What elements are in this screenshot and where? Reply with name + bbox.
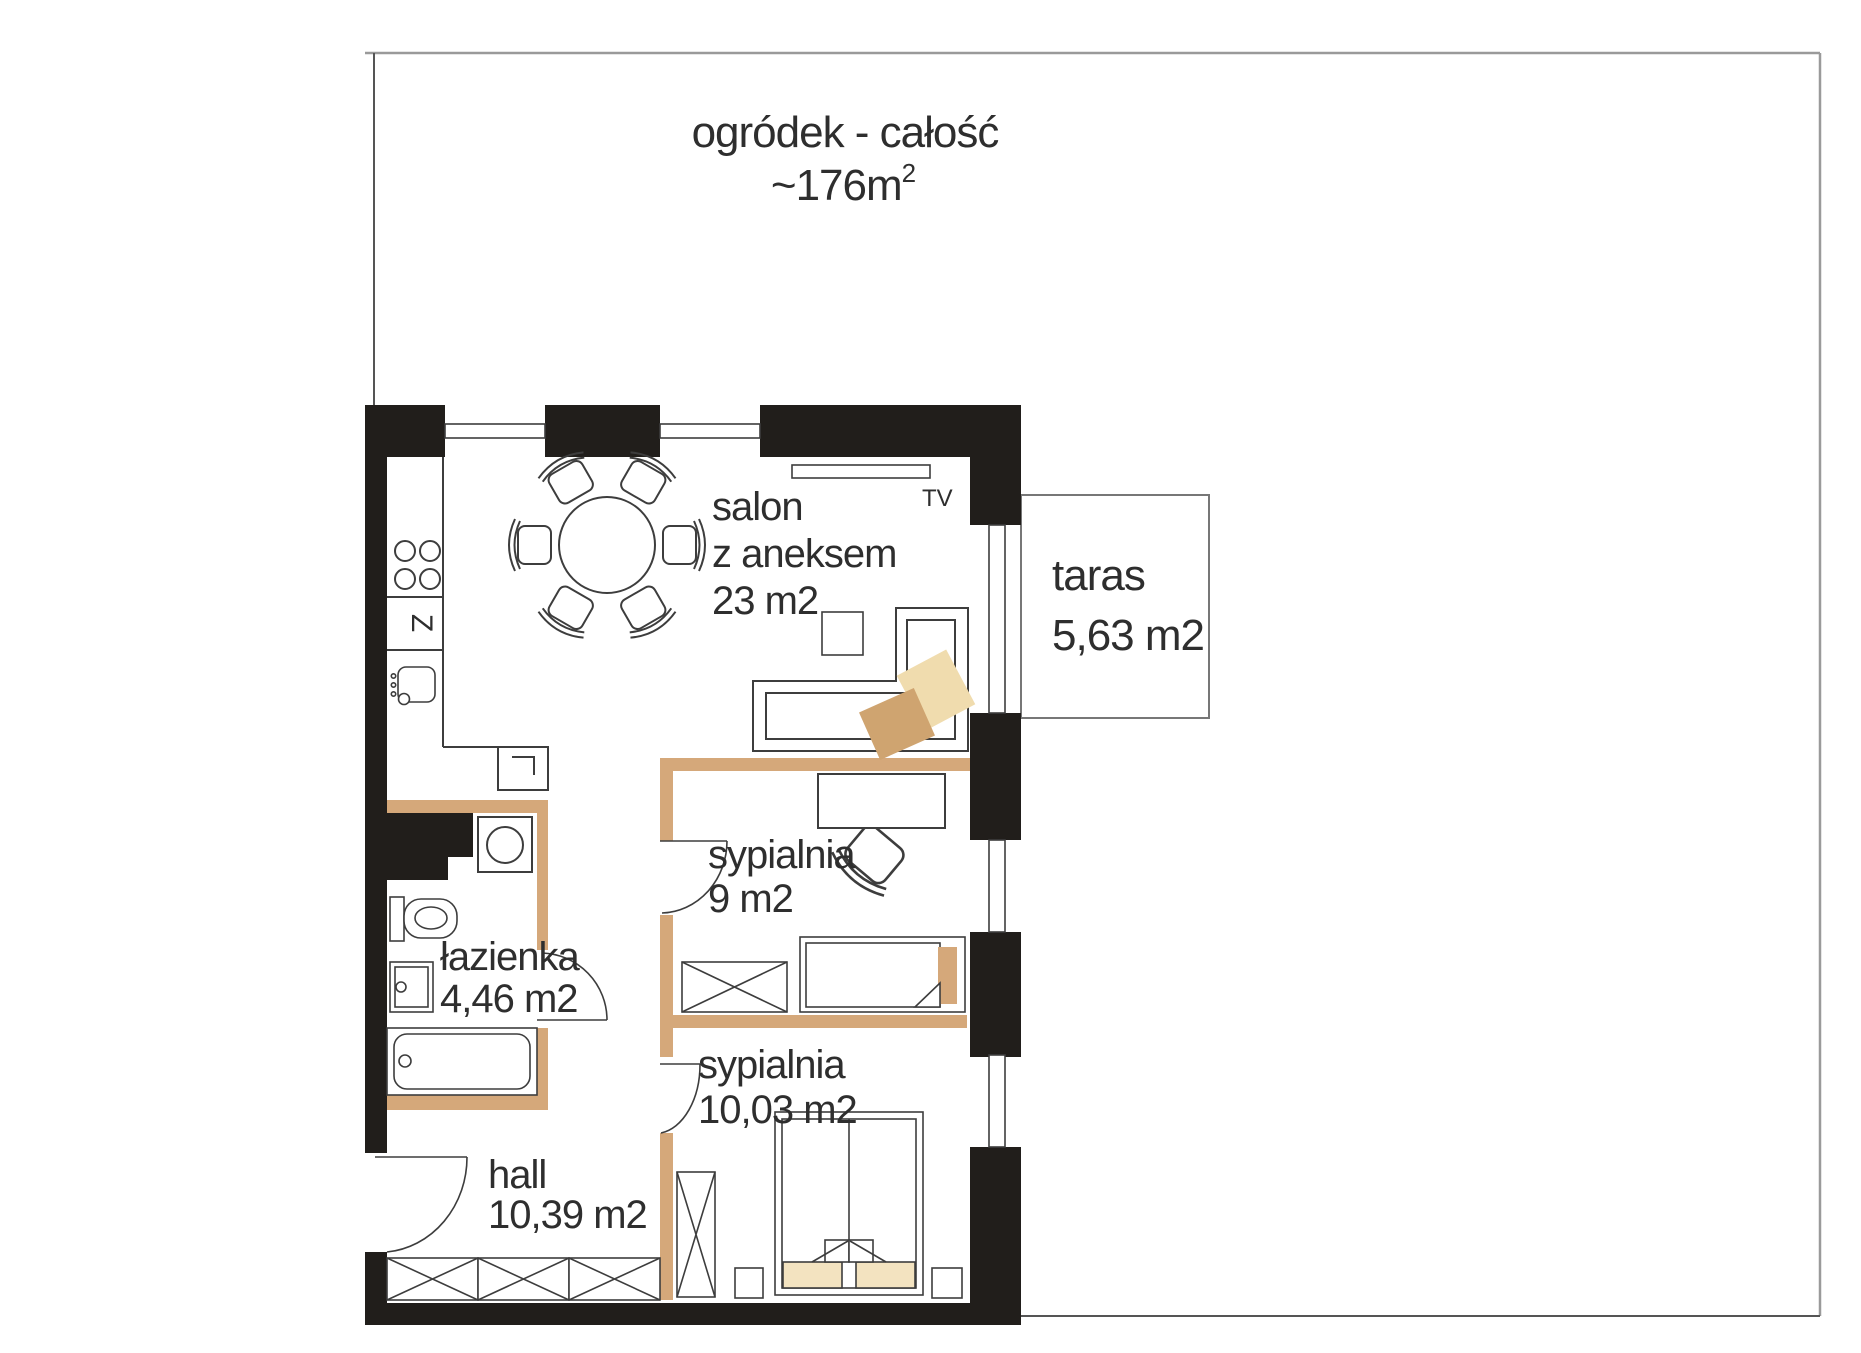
room-area-salon: 23 m2 <box>712 579 818 623</box>
wardrobe-icon <box>682 962 787 1012</box>
bed-pillow <box>783 1262 842 1288</box>
terrace-outline <box>1021 495 1209 718</box>
tv-shelf <box>792 465 930 478</box>
floor-plan-page: Z <box>0 0 1861 1353</box>
wall-right-segment-1 <box>970 713 1021 840</box>
partition-bedrooms-left-3 <box>660 1133 673 1300</box>
room-area-sypialnia10: 10,03 m2 <box>698 1088 857 1132</box>
partition-bedrooms-left-2 <box>660 915 673 1057</box>
partition-between-bedrooms <box>673 1015 967 1028</box>
room-label-taras: taras <box>1052 551 1145 600</box>
room-label-salon-2: z aneksem <box>712 532 896 576</box>
double-bed <box>775 1112 923 1295</box>
window-bedroom-10 <box>989 1055 1005 1147</box>
side-table <box>822 612 863 655</box>
entry-door <box>375 1157 467 1252</box>
bedroom10-door <box>660 1064 700 1133</box>
fridge-cabinet <box>498 747 548 790</box>
floor-plan-drawing: Z <box>0 0 1861 1353</box>
bathroom-sink-icon <box>390 962 433 1012</box>
dining-table <box>559 497 655 593</box>
partition-bedrooms-left-1 <box>660 771 673 841</box>
washing-machine-icon <box>478 817 532 872</box>
room-label-lazienka: łazienka <box>440 935 581 979</box>
dining-chair <box>663 519 705 571</box>
wardrobe-icon <box>677 1172 715 1297</box>
partition-bathroom-bottom <box>385 1095 548 1110</box>
room-area-lazienka: 4,46 m2 <box>440 977 578 1021</box>
desk <box>818 774 945 828</box>
dishwasher-label: Z <box>405 614 438 632</box>
bathtub-icon <box>387 1028 537 1095</box>
bed-pillow <box>856 1262 915 1288</box>
wall-shaft-upper <box>387 813 473 857</box>
dining-set <box>509 447 705 643</box>
window-salon <box>660 424 760 438</box>
bedroom10-area <box>677 1112 962 1298</box>
nightstand <box>735 1268 763 1298</box>
garden-title: ogródek - całość <box>692 108 999 157</box>
wall-top-right <box>760 405 1021 457</box>
wall-right-segment-3 <box>970 1147 1021 1325</box>
tv-label: TV <box>922 485 953 512</box>
kitchen-sink-icon <box>391 667 435 705</box>
wall-right-segment-2 <box>970 932 1021 1057</box>
room-area-taras: 5,63 m2 <box>1052 611 1204 660</box>
window-kitchen <box>445 424 545 438</box>
partition-bathroom-right-lower <box>537 1028 548 1095</box>
wall-bottom <box>365 1303 1021 1325</box>
garden-area: ~176m2 <box>771 158 916 210</box>
window-bedroom-9 <box>989 840 1005 932</box>
room-area-sypialnia9: 9 m2 <box>708 877 793 921</box>
hall-wardrobe <box>387 1258 660 1300</box>
partition-bathroom-top <box>385 800 548 813</box>
wall-left <box>365 455 387 1153</box>
room-label-sypialnia10: sypialnia <box>698 1043 846 1087</box>
bed-blanket <box>938 947 957 1004</box>
room-label-sypialnia9: sypialnia <box>708 833 856 877</box>
wall-right-corner <box>970 455 1021 525</box>
wall-shaft-lower <box>387 857 448 880</box>
wall-top-left-corner <box>365 405 445 457</box>
dining-chair <box>509 519 551 571</box>
room-label-hall: hall <box>488 1153 546 1197</box>
room-area-hall: 10,39 m2 <box>488 1193 647 1237</box>
wall-top-middle <box>545 405 660 457</box>
terrace-door-window <box>989 525 1005 713</box>
room-label-salon: salon <box>712 485 803 529</box>
garden-area-sup: 2 <box>902 158 916 188</box>
stove-icon <box>395 541 440 589</box>
partition-bathroom-right-upper <box>537 813 548 950</box>
kitchen-area: Z <box>387 457 548 790</box>
single-bed <box>800 937 965 1012</box>
garden-area-main: ~176m <box>771 161 902 210</box>
partition-salon-bedroom <box>660 758 970 771</box>
nightstand <box>932 1268 962 1298</box>
